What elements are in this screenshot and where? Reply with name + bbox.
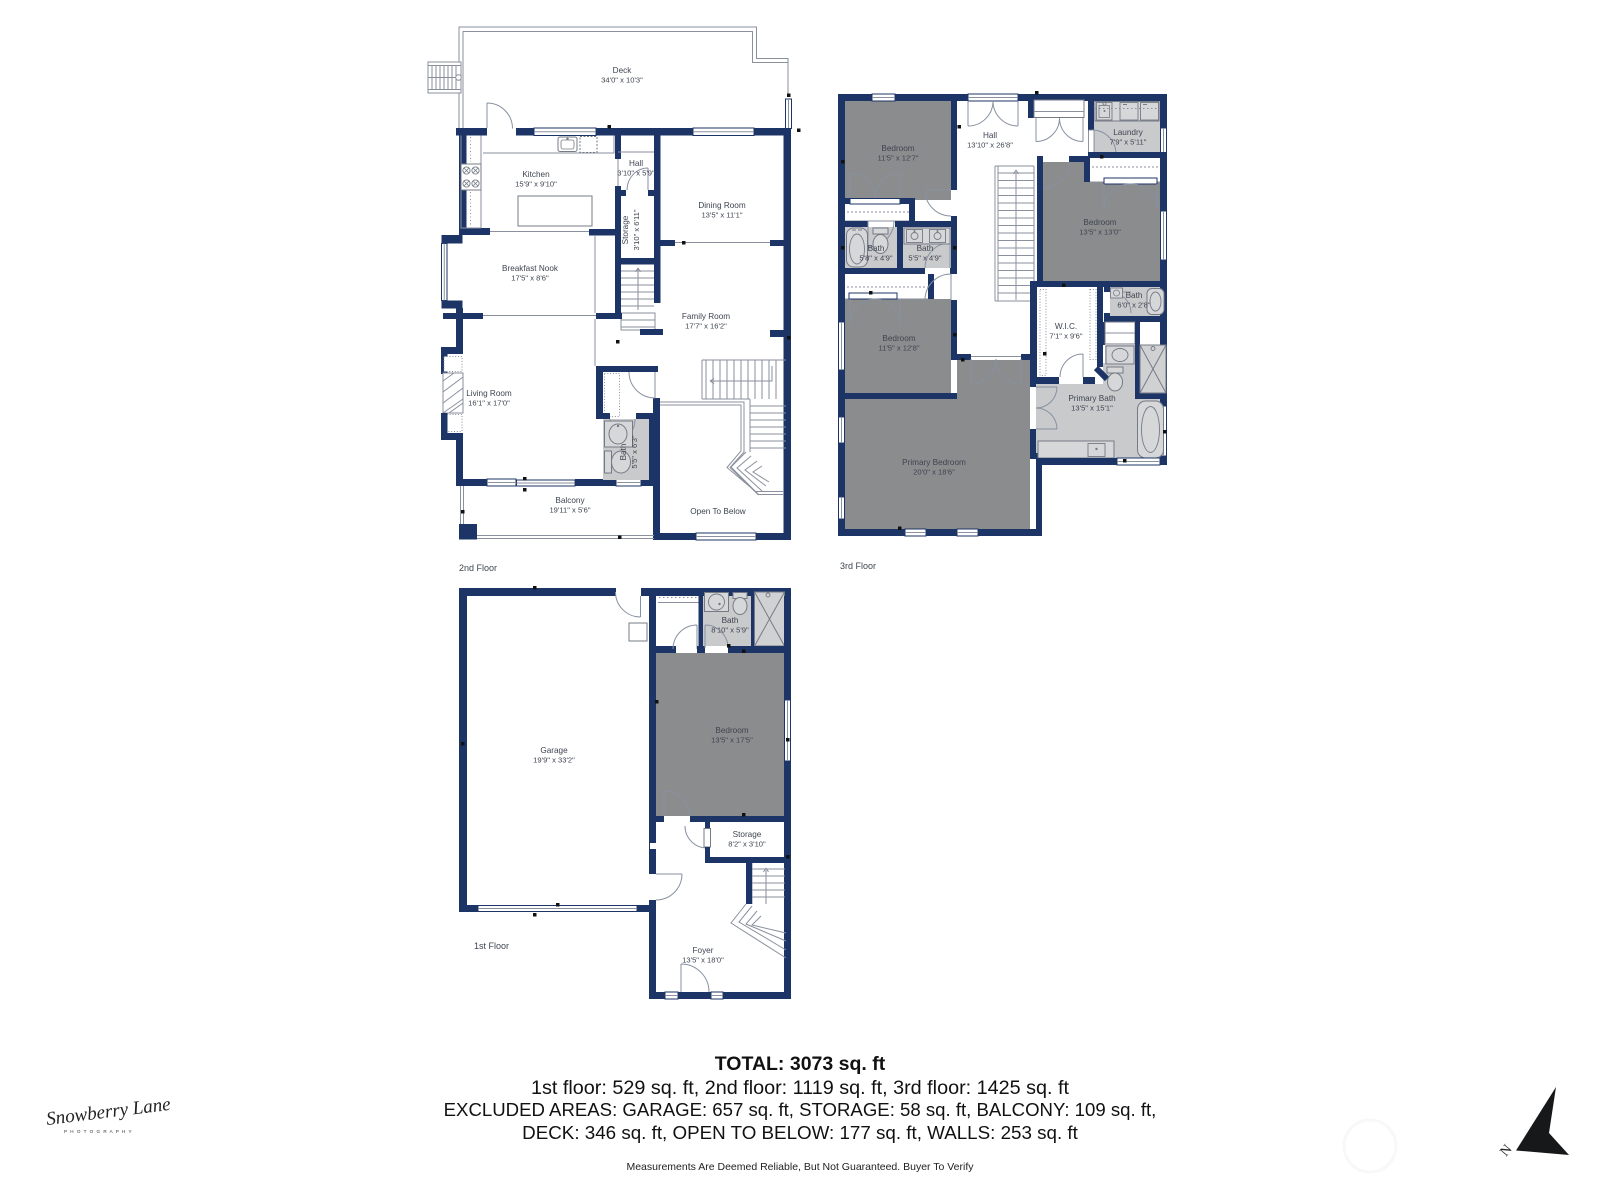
- svg-text:3'10" x 5'9": 3'10" x 5'9": [617, 169, 655, 178]
- svg-text:13'10" x 26'8": 13'10" x 26'8": [967, 141, 1013, 150]
- svg-text:7'1" x 9'6": 7'1" x 9'6": [1049, 332, 1083, 341]
- svg-text:8'10" x 5'9": 8'10" x 5'9": [711, 626, 749, 635]
- svg-text:Primary Bedroom: Primary Bedroom: [902, 458, 966, 467]
- svg-text:1st floor: 529 sq. ft, 2nd flo: 1st floor: 529 sq. ft, 2nd floor: 1119 s…: [531, 1077, 1070, 1099]
- svg-text:Dining Room: Dining Room: [698, 201, 746, 210]
- svg-text:Hall: Hall: [629, 159, 643, 168]
- svg-text:3'10" x 6'11": 3'10" x 6'11": [632, 209, 641, 250]
- svg-text:16'1" x 17'0": 16'1" x 17'0": [468, 399, 510, 408]
- svg-text:6'0" x 2'8": 6'0" x 2'8": [1117, 301, 1151, 310]
- svg-text:Hall: Hall: [983, 131, 997, 140]
- svg-text:19'9" x 33'2": 19'9" x 33'2": [533, 756, 575, 765]
- svg-text:13'5" x 17'5": 13'5" x 17'5": [711, 736, 753, 745]
- svg-text:Bath: Bath: [868, 244, 885, 253]
- svg-text:17'7" x 16'2": 17'7" x 16'2": [685, 322, 727, 331]
- svg-text:Family Room: Family Room: [682, 312, 730, 321]
- svg-text:Bath: Bath: [619, 443, 628, 460]
- svg-text:Balcony: Balcony: [555, 496, 585, 505]
- svg-text:Garage: Garage: [540, 746, 568, 755]
- svg-text:8'2" x 3'10": 8'2" x 3'10": [728, 840, 766, 849]
- svg-text:Laundry: Laundry: [1113, 128, 1143, 137]
- svg-text:5'8" x 4'9": 5'8" x 4'9": [859, 254, 893, 263]
- svg-text:Bedroom: Bedroom: [881, 144, 914, 153]
- svg-text:Bedroom: Bedroom: [715, 726, 748, 735]
- svg-text:Open To Below: Open To Below: [690, 507, 745, 516]
- svg-text:13'5" x 11'1": 13'5" x 11'1": [701, 211, 742, 220]
- svg-text:17'5" x 8'6": 17'5" x 8'6": [511, 274, 549, 283]
- svg-text:20'0" x 18'6": 20'0" x 18'6": [913, 468, 955, 477]
- svg-text:3rd Floor: 3rd Floor: [840, 561, 876, 571]
- svg-text:Storage: Storage: [733, 830, 762, 839]
- svg-text:Measurements Are Deemed Reliab: Measurements Are Deemed Reliable, But No…: [626, 1161, 974, 1173]
- svg-text:Bedroom: Bedroom: [882, 334, 915, 343]
- svg-text:2nd Floor: 2nd Floor: [459, 563, 497, 573]
- svg-text:Kitchen: Kitchen: [522, 170, 550, 179]
- svg-text:DECK: 346 sq. ft, OPEN TO BELO: DECK: 346 sq. ft, OPEN TO BELOW: 177 sq.…: [522, 1122, 1078, 1143]
- svg-text:TOTAL: 3073 sq. ft: TOTAL: 3073 sq. ft: [715, 1053, 886, 1075]
- svg-text:Bath: Bath: [917, 244, 934, 253]
- svg-text:P H O T O G R A P H Y: P H O T O G R A P H Y: [64, 1129, 133, 1134]
- svg-text:Breakfast Nook: Breakfast Nook: [502, 264, 559, 273]
- svg-text:Bath: Bath: [1126, 291, 1143, 300]
- svg-text:Foyer: Foyer: [693, 946, 714, 955]
- svg-text:13'5" x 18'0": 13'5" x 18'0": [682, 956, 724, 965]
- svg-text:5'5" x 6'3": 5'5" x 6'3": [630, 435, 639, 469]
- svg-text:34'0" x 10'3": 34'0" x 10'3": [601, 76, 643, 85]
- svg-text:Bath: Bath: [722, 616, 739, 625]
- svg-text:Storage: Storage: [621, 215, 630, 244]
- svg-text:W.I.C.: W.I.C.: [1055, 322, 1077, 331]
- svg-text:11'5" x 12'7": 11'5" x 12'7": [877, 154, 918, 163]
- svg-text:13'5" x 13'0": 13'5" x 13'0": [1079, 228, 1121, 237]
- svg-text:19'11" x 5'6": 19'11" x 5'6": [549, 506, 590, 515]
- svg-text:Living Room: Living Room: [466, 389, 512, 398]
- svg-text:5'5" x 4'9": 5'5" x 4'9": [908, 254, 942, 263]
- svg-text:EXCLUDED AREAS: GARAGE: 657 sq: EXCLUDED AREAS: GARAGE: 657 sq. ft, STOR…: [444, 1099, 1157, 1120]
- svg-text:15'9" x 9'10": 15'9" x 9'10": [515, 180, 557, 189]
- svg-text:13'5" x 15'1": 13'5" x 15'1": [1071, 404, 1113, 413]
- svg-text:1st Floor: 1st Floor: [474, 941, 509, 951]
- svg-text:Primary Bath: Primary Bath: [1068, 394, 1116, 403]
- svg-text:11'5" x 12'8": 11'5" x 12'8": [878, 344, 919, 353]
- svg-text:7'9" x 5'11": 7'9" x 5'11": [1110, 138, 1147, 147]
- svg-text:Bedroom: Bedroom: [1083, 218, 1116, 227]
- svg-text:Deck: Deck: [613, 66, 633, 75]
